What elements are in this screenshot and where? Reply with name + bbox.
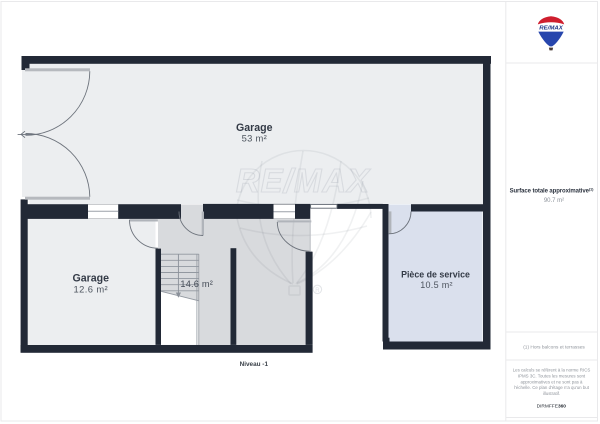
svg-text:Garage: Garage bbox=[73, 272, 110, 284]
svg-text:l'échelle. Ce plan d'étage n'a: l'échelle. Ce plan d'étage n'a qu'un but bbox=[514, 385, 590, 390]
svg-text:12.6 m²: 12.6 m² bbox=[74, 284, 109, 295]
svg-text:53 m²: 53 m² bbox=[242, 133, 267, 144]
svg-text:10.5 m²: 10.5 m² bbox=[420, 280, 453, 290]
svg-text:DIRMFFE360: DIRMFFE360 bbox=[537, 404, 567, 410]
svg-text:IPMS 3C. Toutes les mesures so: IPMS 3C. Toutes les mesures sont bbox=[518, 373, 586, 378]
svg-text:Niveau -1: Niveau -1 bbox=[240, 361, 269, 368]
svg-text:Pièce de service: Pièce de service bbox=[401, 270, 470, 280]
svg-text:14.6 m²: 14.6 m² bbox=[180, 279, 213, 289]
svg-text:RE/MAX: RE/MAX bbox=[539, 25, 563, 31]
svg-text:approximatives et ne sont pas: approximatives et ne sont pas à bbox=[521, 379, 584, 384]
svg-text:RE/MAX: RE/MAX bbox=[236, 162, 371, 199]
svg-text:R: R bbox=[315, 288, 320, 294]
svg-text:(1) Hors balcons et terrasses: (1) Hors balcons et terrasses bbox=[523, 344, 585, 350]
svg-text:Les calculs se réfèrent à la n: Les calculs se réfèrent à la norme RICS bbox=[513, 368, 591, 373]
svg-text:90.7 m²: 90.7 m² bbox=[544, 198, 564, 204]
svg-text:illustratif.: illustratif. bbox=[543, 391, 560, 396]
svg-text:Surface totale approximative(1: Surface totale approximative(1) bbox=[510, 187, 595, 195]
